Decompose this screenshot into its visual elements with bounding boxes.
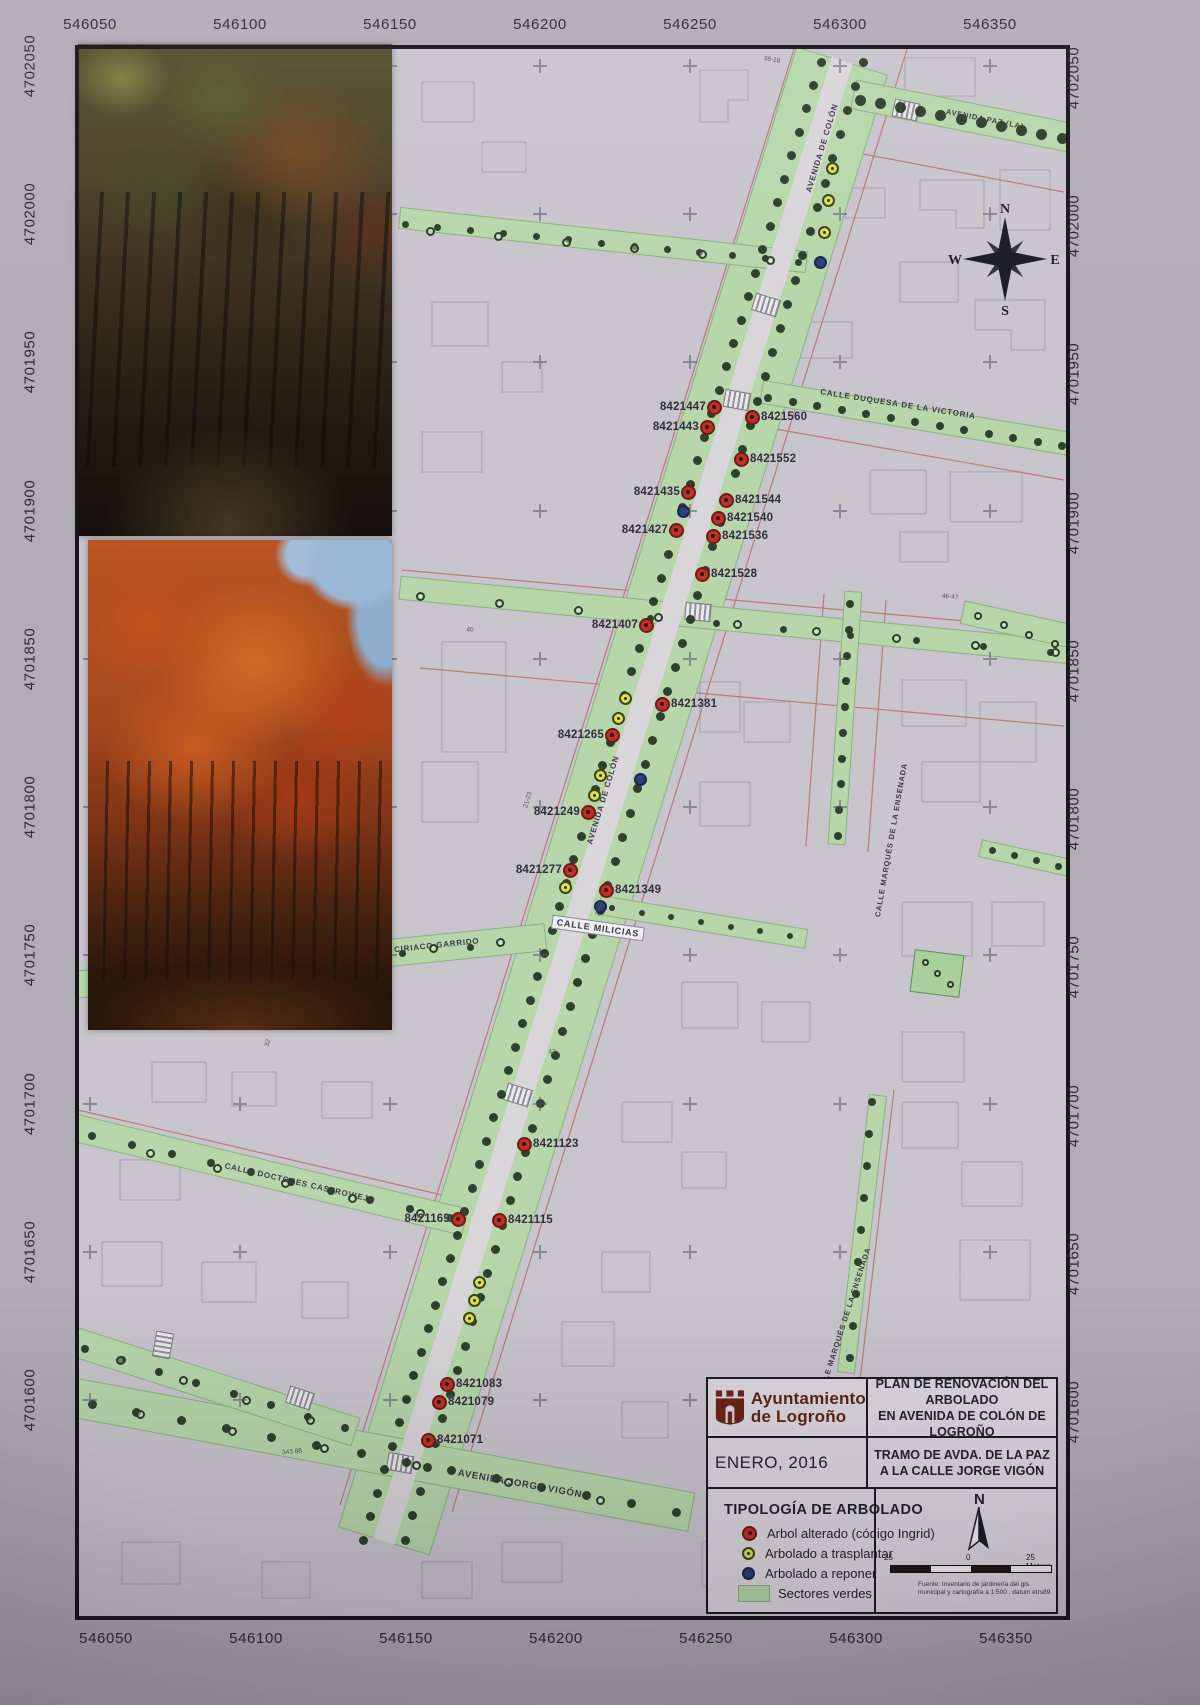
grid-label-y-right: 4701850 [1066, 640, 1083, 703]
tree-dot [434, 224, 441, 231]
tree-dot [698, 919, 704, 925]
grid-label-y-left: 4701900 [22, 480, 39, 543]
tree-dot [1033, 857, 1040, 864]
blue-tree-marker-icon [742, 1567, 755, 1580]
tree-marker-yellow [826, 162, 839, 175]
grid-crosshair [983, 652, 997, 666]
tree-dot [737, 316, 746, 325]
grid-label-y-left: 4701600 [22, 1369, 39, 1432]
grid-label-y-left: 4701950 [22, 331, 39, 394]
tree-marker-label-8421265: 8421265 [558, 728, 604, 742]
tree-marker-label-8421083: 8421083 [456, 1377, 502, 1391]
tree-dot [446, 1254, 455, 1263]
source-note-line1: Fuente: Inventario de jardinería del gis [918, 1581, 1052, 1589]
tree-dot [751, 269, 760, 278]
tree-marker-8421083 [440, 1377, 455, 1392]
grid-crosshair [983, 1245, 997, 1259]
map-annotation: 40 [466, 627, 473, 634]
map-annotation: 32 [264, 1039, 273, 1048]
tree-dot [497, 1090, 506, 1099]
tree-ring [766, 256, 775, 265]
grid-crosshair [683, 800, 697, 814]
tree-dot [467, 227, 474, 234]
scale-segment [891, 1566, 931, 1572]
grid-crosshair [683, 948, 697, 962]
tree-marker-8421079 [432, 1395, 447, 1410]
tree-marker-8421540 [711, 511, 726, 526]
tree-dot [838, 755, 846, 763]
grid-crosshair [233, 1393, 247, 1407]
legend-item-label: Sectores verdes [778, 1586, 872, 1601]
tree-dot [528, 1124, 537, 1133]
tree-marker-label-8421169: 8421169 [404, 1212, 450, 1226]
tree-dot [483, 1269, 492, 1278]
grid-label-y-right: 4702000 [1066, 195, 1083, 258]
grid-crosshair [533, 948, 547, 962]
tree-ring [562, 238, 571, 247]
grid-crosshair [833, 504, 847, 518]
tree-ring [947, 981, 954, 988]
grid-label-x-top: 546150 [363, 16, 417, 33]
tree-dot [267, 1433, 276, 1442]
tree-dot [862, 410, 870, 418]
grid-crosshair [533, 1097, 547, 1111]
tree-ring [596, 1496, 605, 1505]
tree-dot [453, 1231, 462, 1240]
tree-dot [728, 924, 734, 930]
tree-dot [1058, 442, 1066, 450]
tree-dot [1009, 434, 1017, 442]
tree-dot [373, 1489, 382, 1498]
legend-item-sectores: Sectores verdes [738, 1585, 872, 1601]
map-annotation: 38-18 [763, 55, 781, 65]
grid-crosshair [683, 207, 697, 221]
tree-dot [155, 1368, 163, 1376]
north-arrow-icon [964, 1505, 994, 1558]
org-name-line2: de Logroño [751, 1408, 866, 1426]
tramo-line1: TRAMO DE AVDA. DE LA PAZ [874, 1447, 1050, 1463]
tree-dot [960, 426, 968, 434]
tree-dot [838, 406, 846, 414]
tree-dot [657, 574, 666, 583]
grid-label-x-top: 546350 [963, 16, 1017, 33]
tree-dot [845, 626, 853, 634]
tree-dot [401, 1536, 410, 1545]
tree-dot [715, 386, 724, 395]
tree-ring [892, 634, 901, 643]
tree-marker-yellow [559, 881, 572, 894]
tree-dot [555, 902, 564, 911]
tree-marker-label-8421123: 8421123 [533, 1137, 579, 1151]
grid-crosshair [383, 1097, 397, 1111]
tree-ring [1051, 640, 1059, 648]
grid-crosshair [833, 652, 847, 666]
grid-crosshair [983, 59, 997, 73]
tree-marker-8421115 [492, 1213, 507, 1228]
grid-label-x-bottom: 546050 [79, 1630, 133, 1647]
grid-label-y-left: 4702000 [22, 183, 39, 246]
grid-label-y-left: 4701750 [22, 924, 39, 987]
tree-marker-yellow [822, 194, 835, 207]
tree-marker-yellow [468, 1294, 481, 1307]
grid-crosshair [383, 1245, 397, 1259]
legend-box: TIPOLOGÍA DE ARBOLADO Arbol alterado (có… [706, 1487, 1058, 1614]
tree-dot [453, 1366, 462, 1375]
tree-dot [611, 857, 620, 866]
tree-dot [402, 1458, 411, 1467]
tree-ring [812, 627, 821, 636]
tree-marker-8421560 [745, 410, 760, 425]
tree-dot [639, 910, 645, 916]
grid-crosshair [533, 504, 547, 518]
tree-marker-8421552 [734, 452, 749, 467]
tree-dot [887, 414, 895, 422]
tree-dot [855, 95, 866, 106]
tree-ring [136, 1410, 145, 1419]
tree-dot [664, 246, 671, 253]
tree-dot [860, 1194, 868, 1202]
tree-dot [81, 1345, 89, 1353]
tree-dot [980, 643, 987, 650]
tree-dot [416, 1487, 425, 1496]
grid-label-x-top: 546200 [513, 16, 567, 33]
tree-marker-8421435 [681, 485, 696, 500]
grid-label-y-right: 4701950 [1066, 343, 1083, 406]
tree-dot [577, 832, 586, 841]
tree-dot [366, 1512, 375, 1521]
compass-rose-icon: N E S W [946, 200, 1064, 318]
tree-dot [468, 1184, 477, 1193]
tree-dot [821, 179, 830, 188]
tree-marker-8421265 [605, 728, 620, 743]
grid-crosshair [233, 1097, 247, 1111]
tree-dot [787, 933, 793, 939]
tree-dot [582, 1491, 591, 1500]
grid-label-y-right: 4701650 [1066, 1233, 1083, 1296]
tree-dot [168, 1150, 176, 1158]
grid-crosshair [683, 59, 697, 73]
grid-label-x-top: 546300 [813, 16, 867, 33]
scale-bar [890, 1565, 1052, 1573]
tree-marker-label-8421071: 8421071 [437, 1433, 483, 1447]
grid-crosshair [683, 1393, 697, 1407]
tree-dot [791, 276, 800, 285]
org-name: Ayuntamiento de Logroño [751, 1390, 866, 1426]
grid-label-y-left: 4701650 [22, 1221, 39, 1284]
tree-dot [475, 1160, 484, 1169]
tree-dot [915, 106, 926, 117]
tree-marker-8421123 [517, 1137, 532, 1152]
yellow-tree-marker-icon [742, 1547, 755, 1560]
tree-ring [426, 227, 435, 236]
grid-crosshair [683, 652, 697, 666]
plan-title-line2: EN AVENIDA DE COLÓN DE LOGROÑO [868, 1408, 1056, 1440]
tree-ring [1000, 621, 1008, 629]
tree-dot [511, 1043, 520, 1052]
tree-ring [698, 250, 707, 259]
tree-dot [849, 1322, 857, 1330]
tree-dot [598, 240, 605, 247]
tree-dot [671, 663, 680, 672]
tree-ring [179, 1376, 188, 1385]
tree-ring [494, 232, 503, 241]
tree-dot [88, 1132, 96, 1140]
map-date: ENERO, 2016 [715, 1453, 828, 1473]
compass-s-label: S [1001, 304, 1009, 318]
tree-marker-8421536 [706, 529, 721, 544]
crosswalk [152, 1331, 174, 1360]
tree-dot [846, 1354, 854, 1362]
tree-dot [776, 324, 785, 333]
tree-dot [780, 626, 787, 633]
tree-ring [974, 612, 982, 620]
grid-crosshair [83, 1097, 97, 1111]
tree-dot [1057, 133, 1067, 144]
street-right-lower-street [978, 839, 1066, 876]
tree-dot [693, 591, 702, 600]
grid-crosshair [533, 1245, 547, 1259]
tree-marker-label-8421443: 8421443 [653, 420, 699, 434]
tree-ring [213, 1164, 222, 1173]
tree-dot [686, 615, 695, 624]
tree-ring [733, 620, 742, 629]
tree-dot [1055, 863, 1062, 870]
tree-dot [868, 1098, 876, 1106]
tree-marker-8421407 [639, 618, 654, 633]
tree-dot [491, 1245, 500, 1254]
grid-crosshair [983, 355, 997, 369]
map-annotation: 46-47 [941, 593, 958, 602]
tree-marker-8421528 [695, 567, 710, 582]
tree-ring [654, 613, 663, 622]
tree-marker-8421169 [451, 1212, 466, 1227]
tree-ring [416, 592, 425, 601]
tree-dot [766, 222, 775, 231]
street-avenida-de-colon-road [373, 57, 852, 1544]
tree-dot [526, 996, 535, 1005]
grid-crosshair [983, 800, 997, 814]
grid-crosshair [683, 1245, 697, 1259]
tree-dot [744, 292, 753, 301]
green-sector-swatch-icon [738, 1585, 770, 1602]
tree-marker-label-8421536: 8421536 [722, 529, 768, 543]
tree-ring [412, 1461, 421, 1470]
tree-dot [656, 712, 665, 721]
scale-left-label: 25 [884, 1553, 893, 1562]
tree-ring [306, 1416, 315, 1425]
grid-label-x-bottom: 546250 [679, 1630, 733, 1647]
grid-label-y-right: 4701600 [1066, 1381, 1083, 1444]
grid-label-y-left: 4701800 [22, 776, 39, 839]
grid-crosshair [833, 1097, 847, 1111]
tree-dot [780, 175, 789, 184]
grid-label-x-bottom: 546100 [229, 1630, 283, 1647]
tree-ring [971, 641, 980, 650]
grid-label-y-left: 4702050 [22, 35, 39, 98]
grid-crosshair [983, 504, 997, 518]
tree-dot [609, 905, 615, 911]
tree-dot [626, 809, 635, 818]
tree-marker-label-8421552: 8421552 [750, 452, 796, 466]
tree-dot [795, 259, 802, 266]
tree-dot [795, 128, 804, 137]
tree-dot [764, 394, 772, 402]
compass-e-label: E [1050, 253, 1059, 268]
org-name-line1: Ayuntamiento [751, 1390, 866, 1408]
tree-marker-8421427 [669, 523, 684, 538]
tree-dot [851, 82, 860, 91]
tree-marker-8421349 [599, 883, 614, 898]
tree-dot [859, 58, 868, 67]
tree-dot [846, 600, 854, 608]
compass-n-label: N [1000, 202, 1010, 217]
grid-label-y-right: 4701700 [1066, 1085, 1083, 1148]
tree-marker-label-8421540: 8421540 [727, 511, 773, 525]
tree-dot [388, 1442, 397, 1451]
grid-crosshair [833, 800, 847, 814]
grid-label-x-top: 546100 [213, 16, 267, 33]
source-note: Fuente: Inventario de jardinería del gis… [918, 1581, 1052, 1597]
tramo-line2: A LA CALLE JORGE VIGÓN [880, 1463, 1044, 1479]
scanned-map-sheet: 8421447842144384214358421427842140784212… [0, 0, 1200, 1705]
tree-ring [116, 1356, 125, 1365]
tree-marker-label-8421560: 8421560 [761, 410, 807, 424]
grid-crosshair [533, 355, 547, 369]
scale-segment [1011, 1566, 1051, 1572]
grid-crosshair [833, 355, 847, 369]
tree-dot [1011, 852, 1018, 859]
grid-label-y-right: 4702050 [1066, 47, 1083, 110]
tree-marker-8421277 [563, 863, 578, 878]
tree-dot [402, 221, 409, 228]
grid-crosshair [683, 1097, 697, 1111]
tree-marker-label-8421407: 8421407 [592, 618, 638, 632]
tree-ring [574, 606, 583, 615]
tree-dot [359, 1536, 368, 1545]
tree-marker-8421381 [655, 697, 670, 712]
grid-crosshair [83, 1245, 97, 1259]
tree-marker-8421443 [700, 420, 715, 435]
tree-marker-label-8421079: 8421079 [448, 1395, 494, 1409]
tree-dot [506, 1196, 515, 1205]
grid-crosshair [983, 1097, 997, 1111]
grid-label-y-right: 4701900 [1066, 492, 1083, 555]
title-block: Ayuntamiento de Logroño PLAN DE RENOVACI… [706, 1377, 1058, 1438]
tree-ring [922, 959, 929, 966]
tree-dot [423, 1463, 432, 1472]
tree-marker-label-8421115: 8421115 [508, 1213, 553, 1227]
tree-dot [806, 227, 815, 236]
tree-marker-label-8421528: 8421528 [711, 567, 757, 581]
tree-ring [934, 970, 941, 977]
tree-dot [533, 233, 540, 240]
tree-ring [495, 599, 504, 608]
tree-dot [1034, 438, 1042, 446]
street-label: CALLE MARQUÉS DE LA ENSENADA [873, 762, 909, 917]
legend-item-label: Arbolado a reponer [765, 1566, 876, 1581]
tree-dot [985, 430, 993, 438]
tree-dot [581, 954, 590, 963]
tree-marker-label-8421435: 8421435 [634, 485, 680, 499]
tree-dot [834, 832, 842, 840]
tree-dot [863, 1162, 871, 1170]
grid-crosshair [83, 1393, 97, 1407]
tree-dot [841, 703, 849, 711]
source-note-line2: municipal y cartografía a 1:500 , datum … [918, 1589, 1052, 1597]
scale-mid-label: 0 [966, 1553, 970, 1562]
grid-crosshair [383, 1393, 397, 1407]
tree-dot [402, 1395, 411, 1404]
tree-dot [461, 1342, 470, 1351]
red-tree-marker-icon [742, 1526, 757, 1541]
tree-dot [558, 1027, 567, 1036]
grid-label-x-bottom: 546350 [979, 1630, 1033, 1647]
grid-label-x-bottom: 546200 [529, 1630, 583, 1647]
tree-ring [1025, 631, 1033, 639]
scale-segment [971, 1566, 1011, 1572]
tree-marker-label-8421349: 8421349 [615, 883, 661, 897]
tree-dot [641, 760, 650, 769]
tree-ring [228, 1427, 237, 1436]
tree-dot [936, 422, 944, 430]
tree-marker-yellow [463, 1312, 476, 1325]
tree-marker-label-8421381: 8421381 [671, 697, 717, 711]
grid-label-y-left: 4701700 [22, 1073, 39, 1136]
grid-crosshair [533, 652, 547, 666]
grid-crosshair [533, 207, 547, 221]
tree-dot [911, 418, 919, 426]
tree-dot [341, 1424, 349, 1432]
tree-dot [1036, 129, 1047, 140]
tree-marker-label-8421277: 8421277 [516, 863, 562, 877]
grid-label-x-bottom: 546150 [379, 1630, 433, 1647]
tree-dot [482, 1137, 491, 1146]
tree-dot [1047, 649, 1054, 656]
scale-segment [931, 1566, 971, 1572]
grid-label-x-top: 546050 [63, 16, 117, 33]
tree-marker-label-8421544: 8421544 [735, 493, 781, 507]
tree-dot [395, 1418, 404, 1427]
compass-w-label: W [948, 253, 962, 268]
grid-label-y-right: 4701800 [1066, 788, 1083, 851]
grid-crosshair [983, 948, 997, 962]
tree-dot [447, 1466, 456, 1475]
grid-label-y-right: 4701750 [1066, 936, 1083, 999]
tree-marker-label-8421427: 8421427 [622, 523, 668, 537]
grid-crosshair [683, 504, 697, 518]
legend-right-panel: N 25 0 25 Meters Fuente: Inventario de j… [874, 1489, 1056, 1612]
tree-ring [146, 1149, 155, 1158]
tree-ring [320, 1444, 329, 1453]
tree-dot [672, 1508, 681, 1517]
tree-marker-label-8421447: 8421447 [660, 400, 706, 414]
photo-tree-nursery-dark [78, 44, 392, 536]
grid-label-x-bottom: 546300 [829, 1630, 883, 1647]
tree-marker-8421071 [421, 1433, 436, 1448]
grid-crosshair [833, 59, 847, 73]
org-logo-cell: Ayuntamiento de Logroño [708, 1379, 868, 1436]
tree-dot [664, 550, 673, 559]
grid-label-x-top: 546250 [663, 16, 717, 33]
tree-marker-label-8421249: 8421249 [534, 805, 580, 819]
tree-dot [857, 1226, 865, 1234]
tree-marker-yellow [612, 712, 625, 725]
grid-crosshair [833, 948, 847, 962]
tree-dot [128, 1141, 136, 1149]
tree-marker-blue [634, 773, 647, 786]
tree-ring [630, 244, 639, 253]
tree-dot [875, 98, 886, 109]
